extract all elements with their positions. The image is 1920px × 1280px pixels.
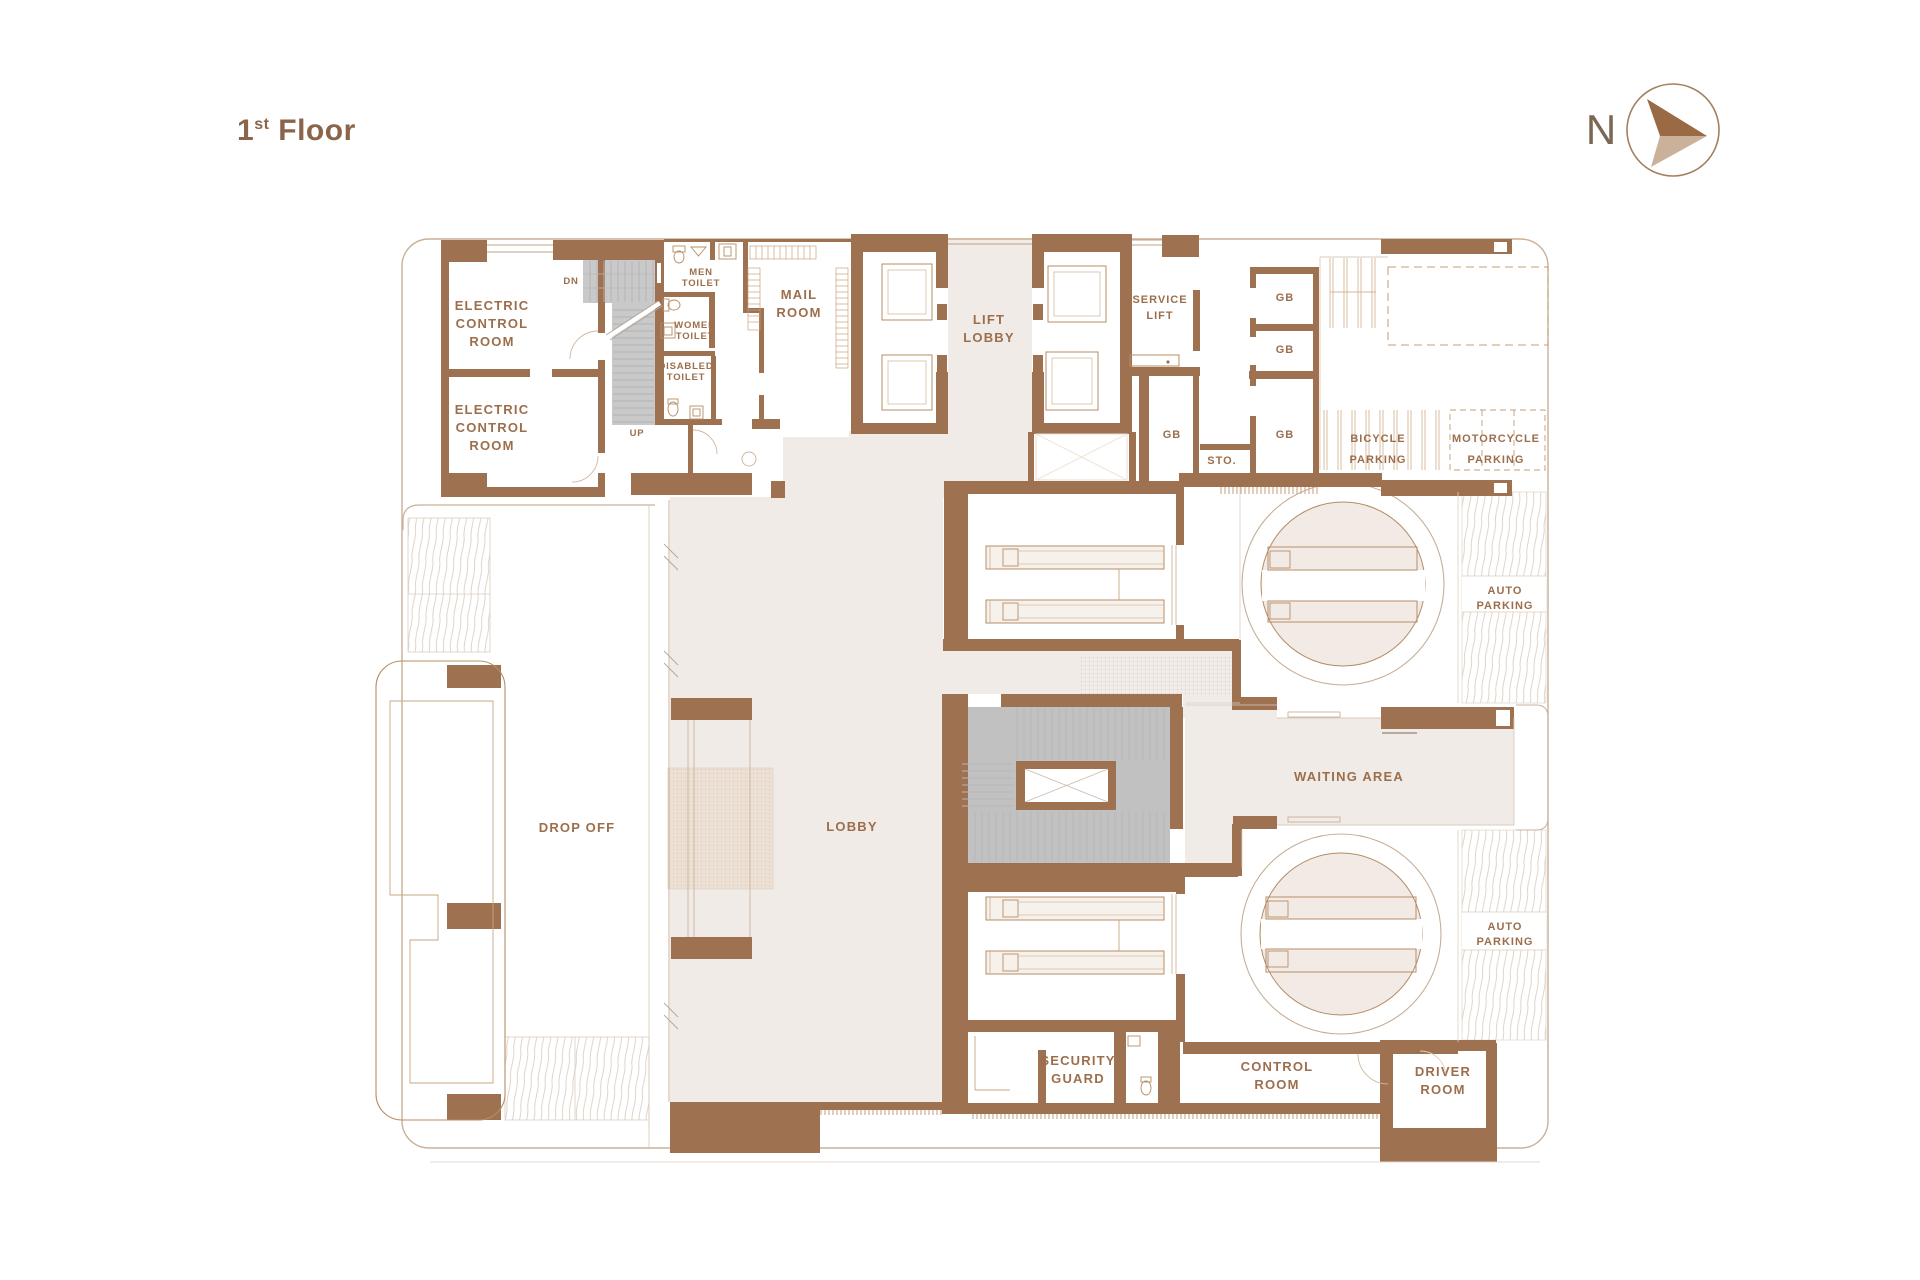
svg-text:ELECTRIC: ELECTRIC [455, 298, 530, 313]
svg-text:LIFT: LIFT [1146, 310, 1173, 322]
svg-text:CONTROL: CONTROL [456, 420, 529, 435]
svg-text:ROOM: ROOM [1420, 1082, 1465, 1097]
svg-text:TOILET: TOILET [682, 278, 720, 289]
svg-text:CONTROL: CONTROL [456, 316, 529, 331]
svg-text:TOILET: TOILET [667, 372, 705, 383]
svg-text:LOBBY: LOBBY [963, 330, 1015, 345]
svg-text:MAIL: MAIL [781, 287, 818, 302]
svg-text:GB: GB [1276, 429, 1295, 441]
svg-text:ROOM: ROOM [469, 334, 514, 349]
svg-text:WOMEN: WOMEN [674, 320, 715, 331]
svg-text:DISABLED: DISABLED [659, 361, 714, 372]
svg-text:ROOM: ROOM [469, 438, 514, 453]
svg-text:SECURITY: SECURITY [1040, 1053, 1115, 1068]
svg-text:MOTORCYCLE: MOTORCYCLE [1452, 433, 1540, 445]
svg-text:MEN: MEN [689, 267, 713, 278]
svg-text:PARKING: PARKING [1477, 600, 1534, 612]
svg-text:WAITING AREA: WAITING AREA [1294, 769, 1404, 784]
svg-text:ROOM: ROOM [776, 305, 821, 320]
svg-text:DRIVER: DRIVER [1415, 1064, 1471, 1079]
svg-text:AUTO: AUTO [1488, 585, 1523, 597]
svg-text:PARKING: PARKING [1477, 936, 1534, 948]
svg-text:LIFT: LIFT [973, 312, 1005, 327]
svg-text:N: N [1586, 106, 1616, 153]
svg-text:LOBBY: LOBBY [826, 819, 878, 834]
svg-text:BICYCLE: BICYCLE [1350, 433, 1405, 445]
svg-text:PARKING: PARKING [1350, 454, 1407, 466]
svg-text:GB: GB [1163, 429, 1182, 441]
svg-text:UP: UP [630, 428, 645, 439]
svg-text:CONTROL: CONTROL [1241, 1059, 1314, 1074]
svg-text:AUTO: AUTO [1488, 921, 1523, 933]
svg-text:STO.: STO. [1207, 455, 1236, 467]
svg-text:SERVICE: SERVICE [1132, 294, 1187, 306]
svg-text:PARKING: PARKING [1468, 454, 1525, 466]
svg-text:DROP OFF: DROP OFF [539, 820, 616, 835]
svg-text:TOILET: TOILET [676, 331, 714, 342]
svg-text:GB: GB [1276, 344, 1295, 356]
svg-text:ELECTRIC: ELECTRIC [455, 402, 530, 417]
svg-text:GUARD: GUARD [1051, 1071, 1105, 1086]
svg-text:ROOM: ROOM [1254, 1077, 1299, 1092]
svg-text:GB: GB [1276, 292, 1295, 304]
svg-text:DN: DN [563, 276, 578, 287]
